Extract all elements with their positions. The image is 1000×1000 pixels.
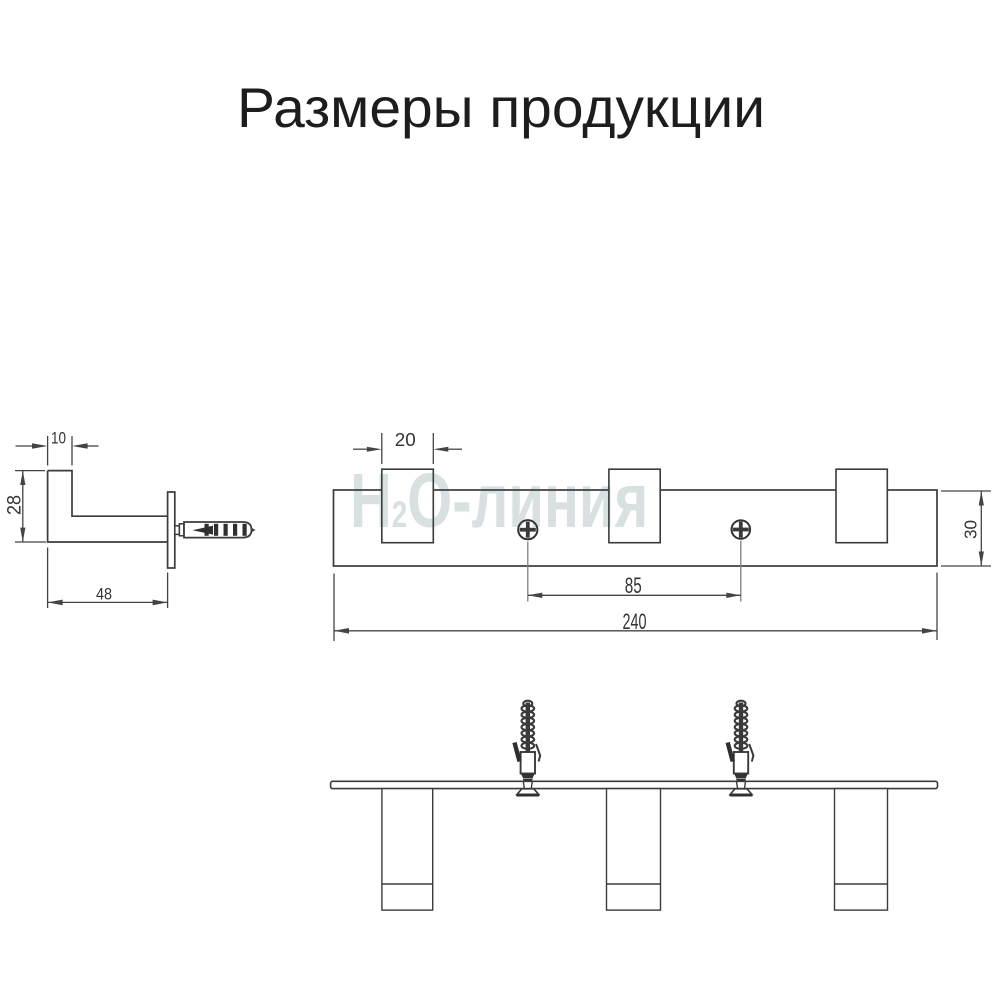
- svg-text:85: 85: [625, 573, 642, 598]
- svg-text:28: 28: [4, 495, 25, 515]
- svg-text:30: 30: [960, 520, 980, 539]
- svg-text:20: 20: [395, 430, 416, 450]
- svg-text:Размеры продукции: Размеры продукции: [237, 76, 765, 139]
- svg-text:48: 48: [96, 585, 112, 604]
- svg-text:10: 10: [51, 429, 66, 448]
- svg-text:240: 240: [623, 609, 647, 634]
